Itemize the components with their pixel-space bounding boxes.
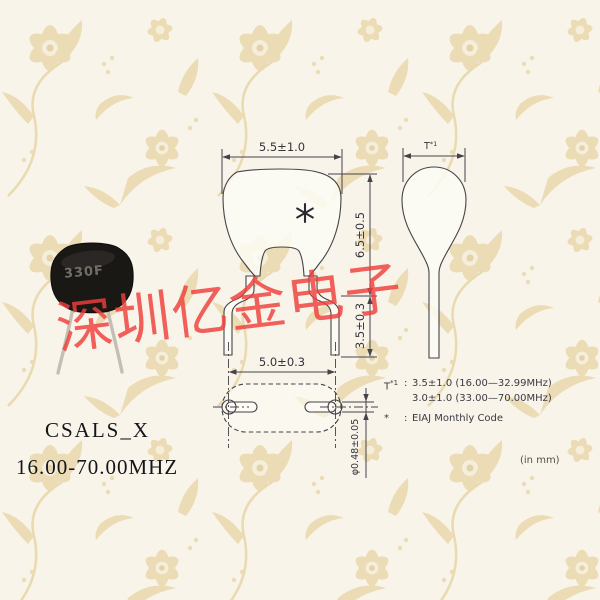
unit-note: (in mm) — [520, 455, 560, 466]
front-body — [223, 169, 341, 276]
note-thickness-row: T*1 : 3.5±1.0 (16.00—32.99MHz) 3.0±1.0 (… — [384, 376, 584, 406]
note-mark-value: EIAJ Monthly Code — [412, 411, 503, 426]
component-photo: 330F — [51, 243, 133, 373]
front-lead-right — [309, 276, 339, 355]
note-thickness-value-1: 3.5±1.0 (16.00—32.99MHz) — [412, 376, 552, 391]
notes-block: T*1 : 3.5±1.0 (16.00—32.99MHz) 3.0±1.0 (… — [384, 376, 584, 426]
side-view — [402, 167, 466, 358]
dim-lead-length-label: 3.5±0.3 — [353, 303, 367, 349]
dim-pitch-label: 5.0±0.3 — [259, 355, 305, 369]
frequency-range: 16.00-70.00MHZ — [16, 455, 178, 480]
technical-drawing: 330F — [0, 0, 600, 600]
photo-lead-left — [58, 307, 73, 373]
note-colon: : — [404, 411, 412, 426]
model-number: CSALS_X — [45, 418, 150, 443]
dim-lead-diameter-label: φ0.48±0.05 — [350, 419, 361, 476]
note-mark-symbol: * — [384, 411, 404, 426]
note-thickness-label: T*1 — [384, 376, 404, 394]
note-mark-row: * : EIAJ Monthly Code — [384, 411, 584, 426]
photo-lead-right — [107, 307, 122, 372]
front-view — [223, 169, 341, 355]
dim-height-label: 6.5±0.5 — [353, 212, 367, 258]
note-thickness-value-2: 3.0±1.0 (33.00—70.00MHz) — [412, 391, 552, 406]
dim-thickness-label: T*1 — [423, 140, 437, 152]
dim-width-label: 5.5±1.0 — [259, 140, 305, 154]
note-colon: : — [404, 376, 412, 391]
side-outline — [402, 167, 466, 358]
